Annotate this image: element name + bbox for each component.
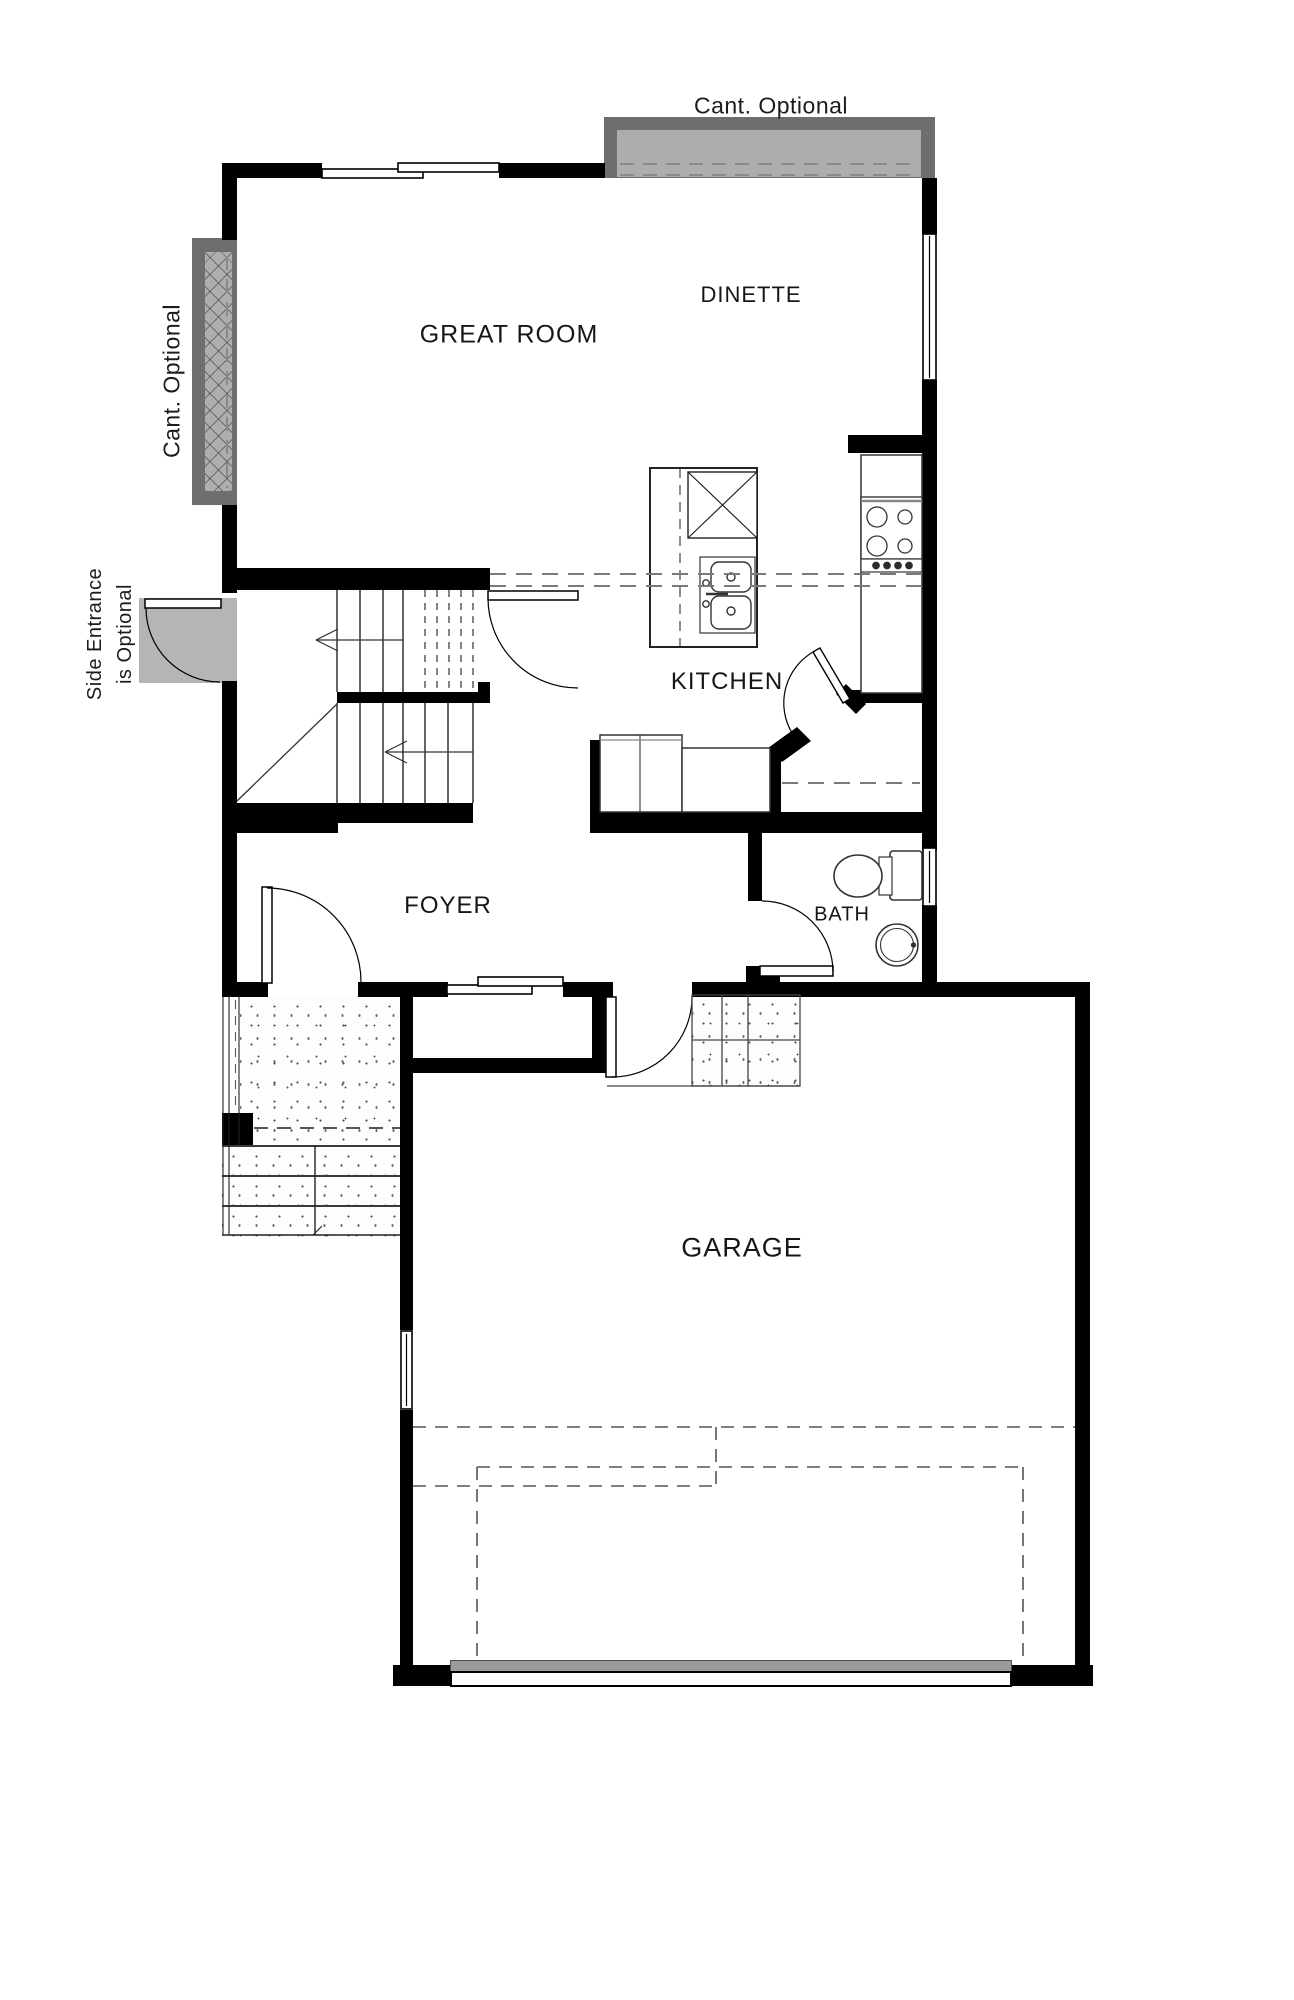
window-bath: [923, 848, 936, 906]
room-label-kitchen: KITCHEN: [671, 668, 783, 696]
room-label-foyer: FOYER: [404, 892, 492, 920]
annotation-side-entrance-line2: is Optional: [110, 568, 140, 700]
window-garage: [401, 1331, 412, 1409]
kitchen-counters: [600, 735, 770, 812]
plan-linework: [0, 0, 1294, 2000]
room-label-garage: GARAGE: [681, 1233, 803, 1264]
front-door: [262, 887, 361, 983]
toilet-icon: [834, 851, 922, 900]
room-label-great-room: GREAT ROOM: [420, 321, 599, 350]
window-dinette: [923, 234, 936, 380]
annotation-cant-optional-left: Cant. Optional: [159, 304, 186, 458]
porch-lines: [222, 997, 400, 1235]
annotation-side-entrance-line1: Side Entrance: [80, 568, 110, 700]
stairs: [237, 590, 473, 803]
window-top: [322, 163, 499, 178]
window-foyer: [447, 977, 563, 994]
bath-sink-icon: [876, 924, 918, 966]
annotation-side-entrance: Side Entrance is Optional: [80, 568, 140, 700]
floor-plan: GREAT ROOM DINETTE KITCHEN FOYER BATH GA…: [0, 0, 1294, 2000]
garage-man-door: [606, 997, 692, 1077]
garage-dashes: [413, 1427, 1075, 1660]
stair-hall-door: [488, 591, 578, 688]
annotation-cant-optional-top: Cant. Optional: [694, 93, 848, 120]
stoop-grid: [607, 995, 800, 1086]
side-entrance-door: [145, 599, 221, 682]
kitchen-sink-icon: [700, 557, 755, 633]
room-label-bath: BATH: [814, 904, 870, 927]
pantry-angled-door: [768, 648, 866, 762]
room-label-dinette: DINETTE: [700, 282, 801, 308]
